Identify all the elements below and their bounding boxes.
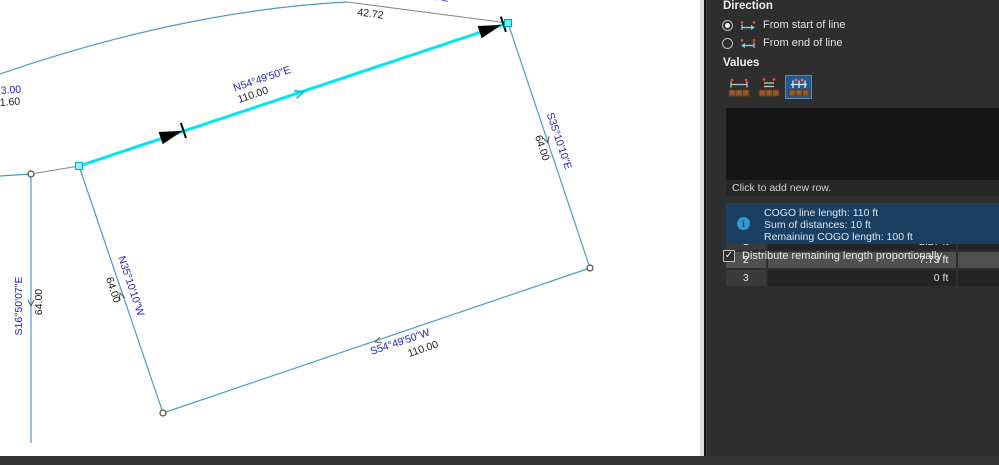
equal-distances-mode-button[interactable]: [755, 75, 782, 99]
cogo-info-text: COGO line length: 110 ft Sum of distance…: [764, 207, 913, 243]
cogo-start-vertex[interactable]: [76, 163, 83, 170]
distribute-remaining-row[interactable]: ✓ Distribute remaining length proportion…: [723, 250, 942, 262]
distance-value[interactable]: 0 ft: [768, 270, 957, 286]
from-end-of-line-icon: [739, 38, 757, 49]
vertex-southwest[interactable]: [160, 410, 166, 416]
sum-of-distances: Sum of distances: 10 ft: [764, 219, 913, 231]
radio-from-start-label: From start of line: [763, 19, 846, 31]
split-marker-arrow-1: [158, 123, 186, 146]
split-marker-arrow-2: [477, 17, 506, 40]
connection-line-west[interactable]: [31, 166, 79, 174]
repetition-value[interactable]: [958, 270, 999, 286]
map-canvas[interactable]: N54°49'50"E 110.00 S35°10'10"E 64.00 S54…: [0, 0, 701, 465]
vertex-west[interactable]: [28, 171, 34, 177]
selected-cogo-line[interactable]: [79, 23, 508, 166]
distribute-checkbox[interactable]: ✓: [723, 250, 735, 262]
radio-from-end-label: From end of line: [763, 37, 842, 49]
north-bearing-label-clipped: …0'01"E: [407, 0, 449, 5]
west-distance-label: 64.00: [103, 276, 123, 305]
cogo-line-length: COGO line length: 110 ft: [764, 207, 913, 219]
radio-from-end[interactable]: From end of line: [722, 36, 842, 50]
multiple-distances-mode-button[interactable]: [785, 75, 812, 99]
equal-distances-icon: [757, 77, 781, 97]
cogo-info-box: i COGO line length: 110 ft Sum of distan…: [726, 203, 999, 244]
farwest-bearing-label: S16°50'07"E: [13, 277, 25, 336]
from-start-of-line-icon: [739, 20, 757, 31]
curved-parcel-line[interactable]: [0, 2, 347, 74]
cogo-split-panel: Direction From start of line From end of…: [706, 0, 999, 465]
radio-button-selected[interactable]: [722, 20, 733, 31]
parcel-edge-east[interactable]: [508, 23, 590, 268]
window-bottom-edge: [0, 456, 999, 465]
values-mode-toolbar: [725, 75, 812, 99]
west-stub-line[interactable]: [0, 174, 31, 176]
values-section-title: Values: [723, 57, 759, 69]
north-distance-label: 42.72: [357, 6, 385, 21]
left-clipped-distance-label: 1.60: [0, 96, 21, 109]
farwest-distance-label: 64.00: [33, 289, 45, 315]
remaining-cogo-length: Remaining COGO length: 100 ft: [764, 231, 913, 243]
cogo-end-vertex[interactable]: [505, 20, 512, 27]
table-row[interactable]: 3 0 ft: [726, 270, 999, 286]
direction-section-title: Direction: [723, 0, 773, 12]
parcel-edge-west[interactable]: [79, 166, 163, 413]
single-distance-mode-button[interactable]: [725, 75, 752, 99]
repetition-value[interactable]: [958, 252, 999, 268]
row-number: 3: [726, 270, 766, 286]
radio-button-unselected[interactable]: [722, 38, 733, 49]
single-distance-icon: [727, 77, 751, 97]
radio-from-start[interactable]: From start of line: [722, 18, 846, 32]
vertex-southeast[interactable]: [587, 265, 593, 271]
parcel-drawing: N54°49'50"E 110.00 S35°10'10"E 64.00 S54…: [0, 0, 701, 465]
add-new-row-button[interactable]: Click to add new row.: [726, 180, 999, 196]
distribute-checkbox-label: Distribute remaining length proportional…: [742, 250, 942, 262]
info-icon: i: [737, 217, 750, 230]
multiple-distances-icon: [787, 77, 811, 97]
